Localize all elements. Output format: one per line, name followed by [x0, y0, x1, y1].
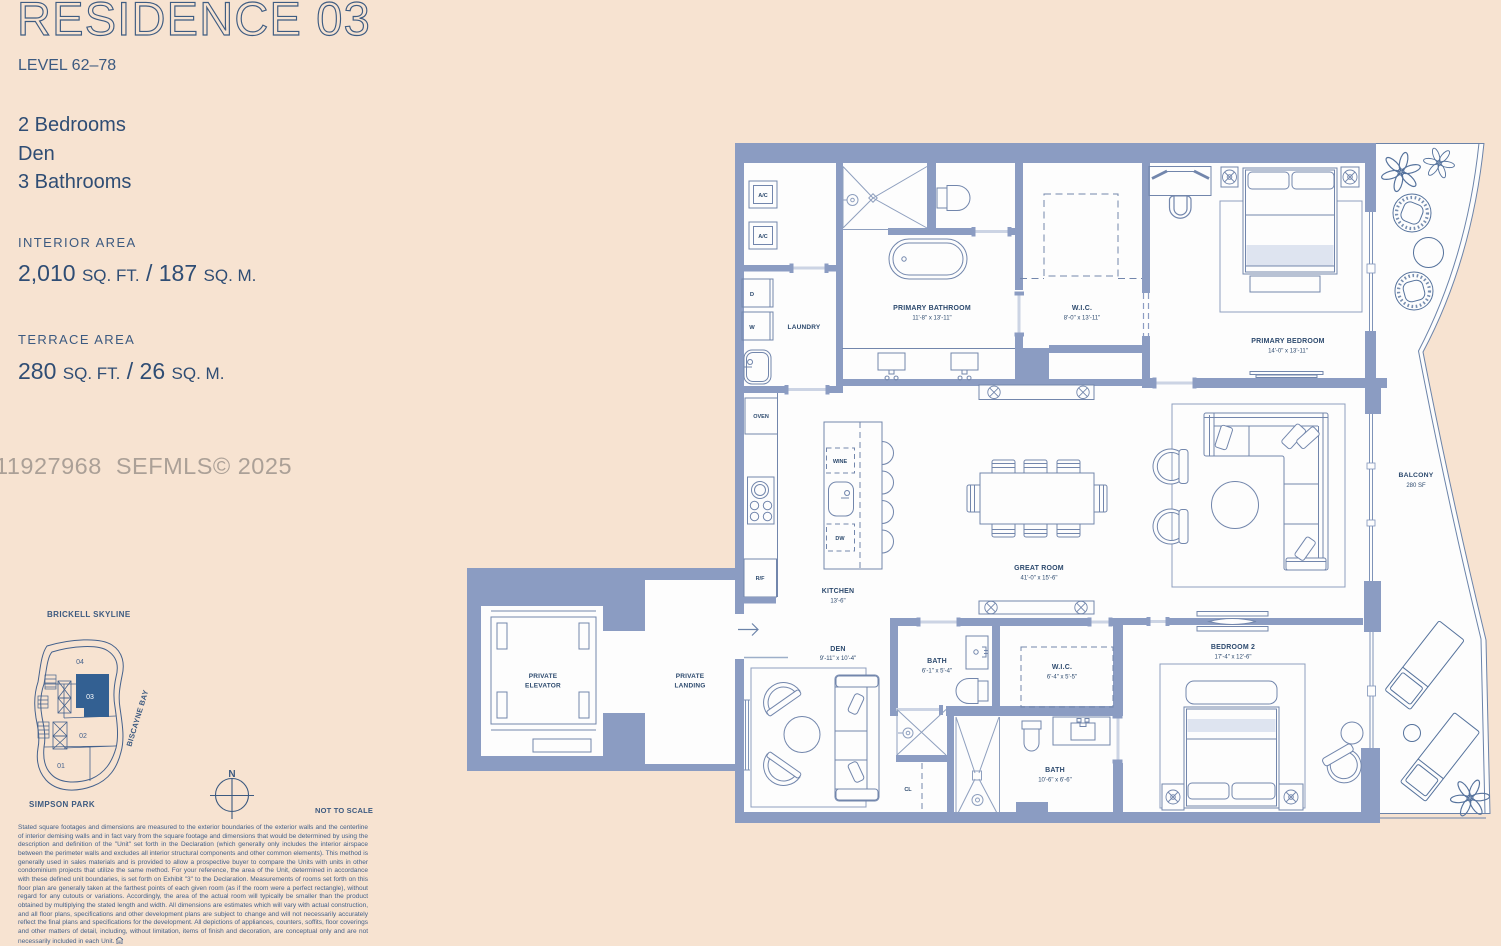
svg-text:D: D [750, 292, 754, 298]
svg-text:CL: CL [904, 787, 912, 793]
svg-text:17'-4" x 12'-6": 17'-4" x 12'-6" [1215, 655, 1252, 661]
svg-text:BEDROOM 2: BEDROOM 2 [1211, 644, 1255, 651]
svg-text:LAUNDRY: LAUNDRY [788, 324, 821, 331]
svg-text:PRIMARY BATHROOM: PRIMARY BATHROOM [893, 305, 971, 312]
svg-text:41'-0" x 15'-6": 41'-0" x 15'-6" [1021, 576, 1058, 582]
svg-text:PRIVATE: PRIVATE [529, 673, 558, 680]
svg-text:W.I.C.: W.I.C. [1052, 664, 1072, 671]
svg-text:R/F: R/F [756, 576, 766, 582]
svg-text:BATH: BATH [927, 658, 947, 665]
svg-text:6'-4" x 5'-5": 6'-4" x 5'-5" [1047, 675, 1077, 681]
svg-text:ELEVATOR: ELEVATOR [525, 683, 561, 690]
svg-text:9'-11" x 10'-4": 9'-11" x 10'-4" [820, 656, 856, 662]
svg-text:14'-0" x 13'-11": 14'-0" x 13'-11" [1268, 349, 1308, 355]
svg-text:8'-0" x 13'-11": 8'-0" x 13'-11" [1064, 316, 1100, 322]
svg-text:BATH: BATH [1045, 767, 1065, 774]
svg-text:KITCHEN: KITCHEN [822, 588, 855, 595]
svg-text:6'-1" x 5'-4": 6'-1" x 5'-4" [922, 669, 952, 675]
svg-text:LANDING: LANDING [674, 683, 705, 690]
svg-text:10'-6" x 6'-6": 10'-6" x 6'-6" [1038, 778, 1072, 784]
svg-text:OVEN: OVEN [753, 414, 769, 420]
svg-text:13'-6": 13'-6" [830, 599, 845, 605]
svg-text:PRIVATE: PRIVATE [676, 673, 705, 680]
svg-text:PRIMARY BEDROOM: PRIMARY BEDROOM [1251, 338, 1324, 345]
svg-text:A/C: A/C [758, 193, 768, 199]
svg-text:W: W [749, 325, 755, 331]
svg-text:11'-8" x 13'-11": 11'-8" x 13'-11" [912, 316, 951, 322]
svg-text:W.I.C.: W.I.C. [1072, 305, 1092, 312]
svg-text:A/C: A/C [758, 234, 768, 240]
svg-text:DW: DW [835, 536, 845, 542]
svg-text:BALCONY: BALCONY [1398, 472, 1433, 479]
svg-text:WINE: WINE [833, 459, 848, 465]
svg-text:280 SF: 280 SF [1406, 483, 1426, 489]
svg-text:GREAT ROOM: GREAT ROOM [1014, 565, 1064, 572]
svg-text:DEN: DEN [830, 646, 845, 653]
